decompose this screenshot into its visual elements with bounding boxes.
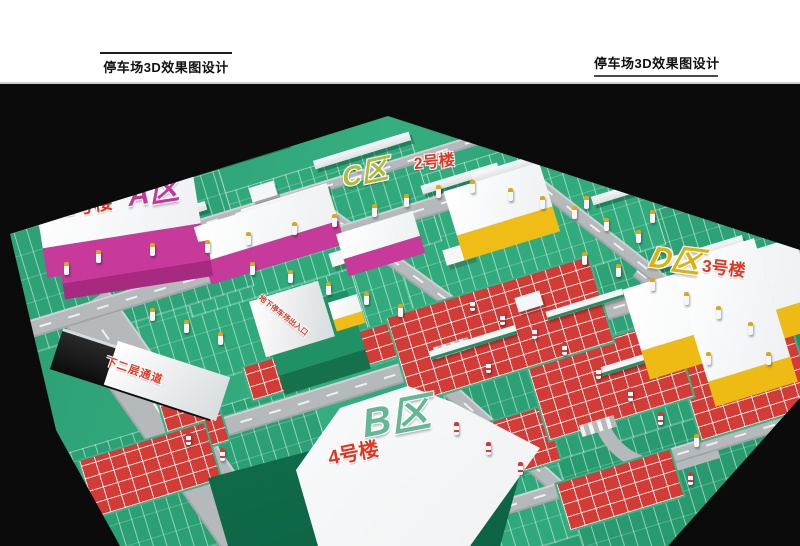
bollard-pillar — [470, 180, 475, 193]
title-overline — [100, 52, 232, 54]
bollard-pillar — [650, 278, 655, 291]
bollard-pillar — [766, 352, 771, 365]
bollard-pillar — [205, 240, 210, 253]
bollard-pillar — [186, 432, 191, 445]
right-title: 停车场3D效果图设计 — [594, 53, 718, 72]
service-structure — [604, 163, 631, 183]
bollard-pillar — [184, 320, 189, 333]
bollard-pillar — [64, 262, 69, 275]
bollard-pillar — [150, 243, 155, 256]
bollard-pillar — [404, 194, 409, 207]
bollard-pillar — [518, 462, 523, 475]
bollard-pillar — [748, 322, 753, 335]
bollard-pillar — [470, 298, 475, 311]
bollard-pillar — [486, 360, 491, 373]
left-title-block: 停车场3D效果图设计 — [100, 52, 232, 76]
bollard-pillar — [218, 332, 223, 345]
bollard-pillar — [250, 262, 255, 275]
poster-canvas: A区 1号楼 C区 2号楼 D区 3号楼 B区 4号楼 下二层通道 地下停车场出… — [0, 0, 800, 546]
bollard-pillar — [688, 472, 693, 485]
title-bar: 停车场3D效果图设计 停车场3D效果图设计 — [0, 0, 800, 84]
bollard-pillar — [486, 442, 491, 455]
bollard-pillar — [706, 352, 711, 365]
bollard-pillar — [150, 308, 155, 321]
bollard-pillar — [436, 185, 441, 198]
bollard-pillar — [220, 448, 225, 461]
bollard-pillar — [246, 232, 251, 245]
zone-d-label: D区 — [646, 243, 705, 279]
bollard-pillar — [616, 264, 621, 277]
bollard-pillar — [288, 270, 293, 283]
bollard-pillar — [658, 412, 663, 425]
bollard-pillar — [716, 306, 721, 319]
left-title: 停车场3D效果图设计 — [100, 57, 232, 76]
bollard-pillar — [96, 250, 101, 263]
bollard-pillar — [584, 196, 589, 209]
bollard-pillar — [582, 252, 587, 265]
bollard-pillar — [508, 188, 513, 201]
title-underline — [594, 75, 718, 77]
bollard-pillar — [540, 196, 545, 209]
bollard-pillar — [372, 204, 377, 217]
bollard-pillar — [332, 214, 337, 227]
bollard-pillar — [364, 292, 369, 305]
bollard-pillar — [684, 292, 689, 305]
bollard-pillar — [604, 218, 609, 231]
bollard-pillar — [572, 206, 577, 219]
bollard-pillar — [454, 422, 459, 435]
bollard-pillar — [532, 326, 537, 339]
bollard-pillar — [694, 434, 699, 447]
bollard-pillar — [500, 312, 505, 325]
bollard-pillar — [628, 388, 633, 401]
building-3-label: 3号楼 — [701, 257, 746, 279]
bollard-pillar — [650, 210, 655, 223]
bollard-pillar — [636, 230, 641, 243]
bollard-pillar — [562, 342, 567, 355]
carport-roof — [29, 156, 137, 197]
bollard-pillar — [326, 282, 331, 295]
bollard-pillar — [596, 366, 601, 379]
bollard-pillar — [292, 222, 297, 235]
bollard-pillar — [398, 304, 403, 317]
right-title-block: 停车场3D效果图设计 — [594, 53, 718, 77]
